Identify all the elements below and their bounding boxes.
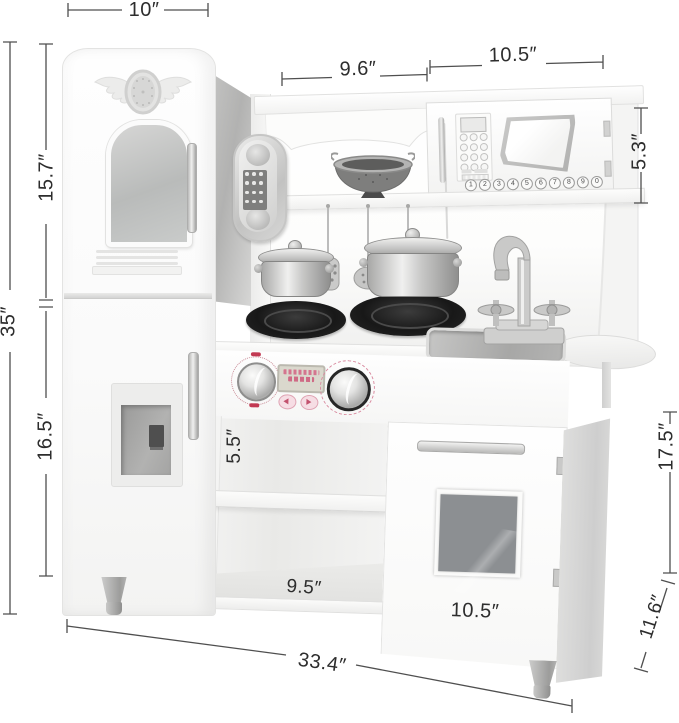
dim-label-fridge-upper-height: 15.7″ [36, 148, 59, 208]
product-dimension-diagram: 1234567890 [0, 0, 679, 723]
dim-label-fridge-lower-height: 16.5″ [35, 407, 58, 467]
dimension-lines [0, 0, 679, 723]
dim-label-hutch-left-width: 9.6″ [334, 57, 383, 81]
dim-label-total-height: 35″ [0, 292, 21, 352]
dim-label-fridge-top-width: 10″ [122, 0, 166, 22]
dim-label-hutch-right-width: 10.5″ [484, 43, 543, 68]
dim-label-microwave-height: 5.3″ [629, 122, 652, 182]
dim-label-open-shelf-width: 9.5″ [273, 575, 334, 601]
dim-label-open-shelf-height: 5.5″ [224, 416, 246, 476]
dim-label-right-cabinet-height: 17.5″ [656, 417, 679, 477]
dim-label-cabinet-door-width: 10.5″ [443, 599, 508, 624]
